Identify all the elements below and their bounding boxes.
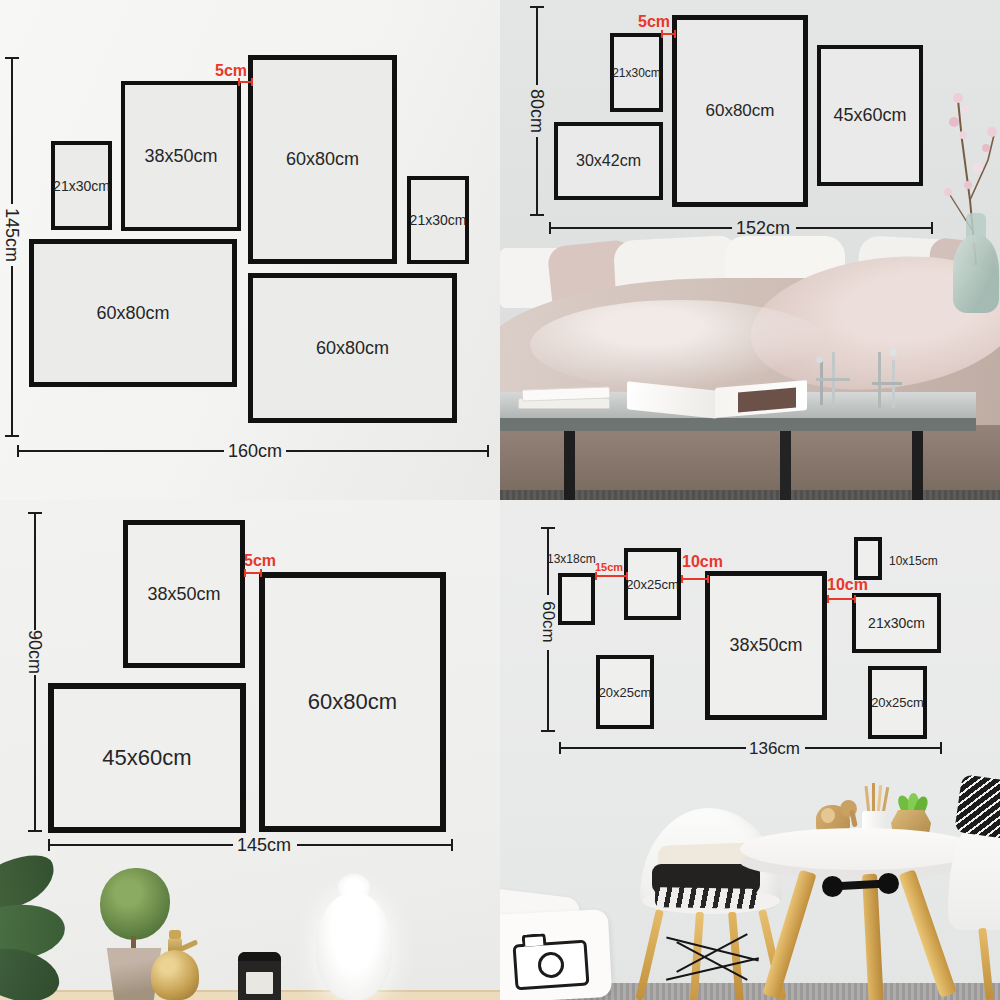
gap-indicator bbox=[595, 572, 628, 580]
dimension-tick bbox=[541, 730, 555, 732]
table-leg bbox=[862, 874, 884, 1000]
gap-indicator bbox=[681, 575, 709, 583]
frame-60x80: 60x80cm bbox=[259, 572, 446, 832]
dimension-line bbox=[536, 7, 538, 85]
frame-60x80: 60x80cm bbox=[248, 55, 397, 264]
frame-38x50: 38x50cm bbox=[121, 81, 241, 231]
dimension-line bbox=[286, 450, 487, 452]
topiary-foliage bbox=[100, 868, 170, 940]
wall-width-label: 136cm bbox=[746, 739, 803, 759]
quadrant-bottom-left-wall-diagram: 38x50cm 60x80cm 45x60cm 90cm 145cm 5cm bbox=[0, 500, 500, 1000]
frame-size-label: 13x18cm bbox=[547, 552, 596, 566]
gap-indicator bbox=[238, 78, 253, 86]
bed-skirt bbox=[500, 425, 1000, 490]
wall-width-label: 145cm bbox=[233, 835, 295, 856]
dimension-line bbox=[536, 137, 538, 215]
frame-21x30: 21x30cm bbox=[852, 593, 941, 653]
frame-38x50: 38x50cm bbox=[705, 571, 827, 720]
dimension-line bbox=[49, 844, 233, 846]
frame-size-label: 21x30cm bbox=[53, 178, 110, 194]
frame-size-label: 20x25cm bbox=[599, 685, 652, 700]
dimension-line bbox=[34, 675, 36, 830]
jar-lid bbox=[238, 952, 281, 961]
bench-leg bbox=[564, 431, 575, 500]
dimension-tick bbox=[5, 435, 19, 437]
frame-20x25: 20x25cm bbox=[868, 666, 927, 739]
gap-label: 5cm bbox=[244, 552, 276, 570]
frame-size-label: 30x42cm bbox=[576, 152, 641, 170]
frame-60x80: 60x80cm bbox=[248, 273, 457, 423]
elephant-trunk bbox=[849, 810, 857, 828]
frame-30x42: 30x42cm bbox=[554, 122, 663, 200]
bench-leg bbox=[912, 431, 923, 500]
dimension-tick bbox=[28, 830, 42, 832]
patterned-blanket-right bbox=[954, 774, 1000, 840]
frame-size-label: 60x80cm bbox=[96, 303, 169, 324]
frame-size-label: 21x30cm bbox=[410, 212, 467, 228]
dimension-line bbox=[560, 747, 746, 749]
dimension-tick bbox=[451, 839, 453, 851]
gap-label: 10cm bbox=[682, 553, 723, 571]
table-hub bbox=[878, 873, 899, 894]
pleated-lamp bbox=[316, 892, 392, 1000]
brass-mister-body bbox=[151, 950, 199, 1000]
quadrant-top-left-wall-diagram: 21x30cm 38x50cm 60x80cm 21x30cm 60x80cm … bbox=[0, 0, 500, 500]
wall-height-label: 60cm bbox=[538, 587, 558, 657]
chair-wire-strut bbox=[666, 937, 759, 962]
frame-38x50: 38x50cm bbox=[123, 520, 245, 668]
frame-size-label: 38x50cm bbox=[144, 146, 217, 167]
dimension-tick bbox=[530, 214, 544, 216]
frame-size-label: 45x60cm bbox=[102, 745, 191, 771]
wall-height-label: 80cm bbox=[527, 76, 547, 146]
pencil bbox=[865, 786, 871, 814]
dimension-line bbox=[550, 227, 732, 229]
dimension-line bbox=[547, 528, 549, 595]
candleholder-knob bbox=[816, 356, 823, 363]
quadrant-bottom-right-dining-nook: 13x18cm 20x25cm 38x50cm 10x15cm 21x30cm … bbox=[500, 500, 1000, 1000]
mister-spout bbox=[180, 940, 198, 952]
dimension-line bbox=[805, 747, 940, 749]
bench-leg bbox=[780, 431, 791, 500]
frame-size-label: 60x80cm bbox=[286, 149, 359, 170]
frame-21x30: 21x30cm bbox=[407, 176, 469, 264]
dimension-line bbox=[11, 266, 13, 435]
tabletop bbox=[740, 828, 978, 870]
gap-indicator bbox=[661, 30, 676, 38]
dimension-line bbox=[18, 450, 224, 452]
camera-viewfinder-icon bbox=[522, 933, 547, 947]
bench-edge bbox=[500, 418, 976, 431]
frame-size-label: 10x15cm bbox=[889, 554, 938, 568]
candleholder-arm bbox=[816, 378, 850, 381]
frame-size-label: 38x50cm bbox=[729, 635, 802, 656]
frame-20x25: 20x25cm bbox=[596, 655, 654, 729]
duvet-highlight bbox=[530, 300, 830, 390]
quadrant-top-right-bedroom: 21x30cm 60x80cm 45x60cm 30x42cm 80cm 152… bbox=[500, 0, 1000, 500]
frame-60x80: 60x80cm bbox=[672, 15, 808, 207]
gap-label: 10cm bbox=[827, 576, 868, 594]
dimension-line bbox=[11, 58, 13, 204]
dimension-line bbox=[547, 650, 549, 732]
wall-height-label: 145cm bbox=[2, 200, 22, 270]
frame-10x15 bbox=[854, 537, 882, 580]
frame-size-label: 20x25cm bbox=[626, 577, 679, 592]
glass-vase bbox=[953, 235, 999, 313]
frame-size-label: 21x30cm bbox=[868, 615, 925, 631]
gap-indicator bbox=[244, 569, 262, 577]
dimension-tick bbox=[487, 445, 489, 457]
frame-45x60: 45x60cm bbox=[817, 45, 923, 186]
candleholder-arm bbox=[872, 382, 902, 385]
frame-size-label: 38x50cm bbox=[147, 584, 220, 605]
gap-label: 5cm bbox=[638, 13, 670, 31]
mister-pump bbox=[169, 930, 181, 939]
frame-45x60: 45x60cm bbox=[48, 683, 246, 833]
dimension-line bbox=[796, 227, 932, 229]
dimension-tick bbox=[940, 742, 942, 754]
gap-indicator bbox=[827, 595, 856, 603]
frame-size-label: 45x60cm bbox=[833, 105, 906, 126]
frame-13x18 bbox=[558, 573, 595, 625]
frame-size-label: 60x80cm bbox=[316, 338, 389, 359]
frame-size-label: 21x30cm bbox=[612, 66, 661, 80]
dimension-line bbox=[34, 513, 36, 630]
frame-21x30: 21x30cm bbox=[51, 141, 112, 230]
frame-layout-collage: 21x30cm 38x50cm 60x80cm 21x30cm 60x80cm … bbox=[0, 0, 1000, 1000]
wall-width-label: 160cm bbox=[225, 441, 285, 462]
frame-20x25: 20x25cm bbox=[624, 548, 681, 620]
pencil bbox=[872, 783, 875, 813]
dimension-line bbox=[297, 844, 451, 846]
jar-label bbox=[246, 972, 273, 994]
candleholder bbox=[878, 352, 881, 408]
dimension-tick bbox=[931, 222, 933, 234]
pencil bbox=[882, 787, 889, 813]
blanket-patterned bbox=[655, 887, 757, 909]
frame-size-label: 60x80cm bbox=[706, 101, 775, 121]
elephant-ear bbox=[821, 808, 835, 823]
table-hub bbox=[822, 876, 843, 897]
frame-size-label: 20x25cm bbox=[871, 695, 924, 710]
frame-60x80: 60x80cm bbox=[29, 239, 237, 387]
candleholder-knob bbox=[889, 348, 897, 356]
candleholder bbox=[820, 360, 823, 405]
wall-width-label: 152cm bbox=[732, 218, 794, 239]
frame-21x30: 21x30cm bbox=[610, 33, 663, 112]
frame-size-label: 60x80cm bbox=[308, 689, 397, 715]
